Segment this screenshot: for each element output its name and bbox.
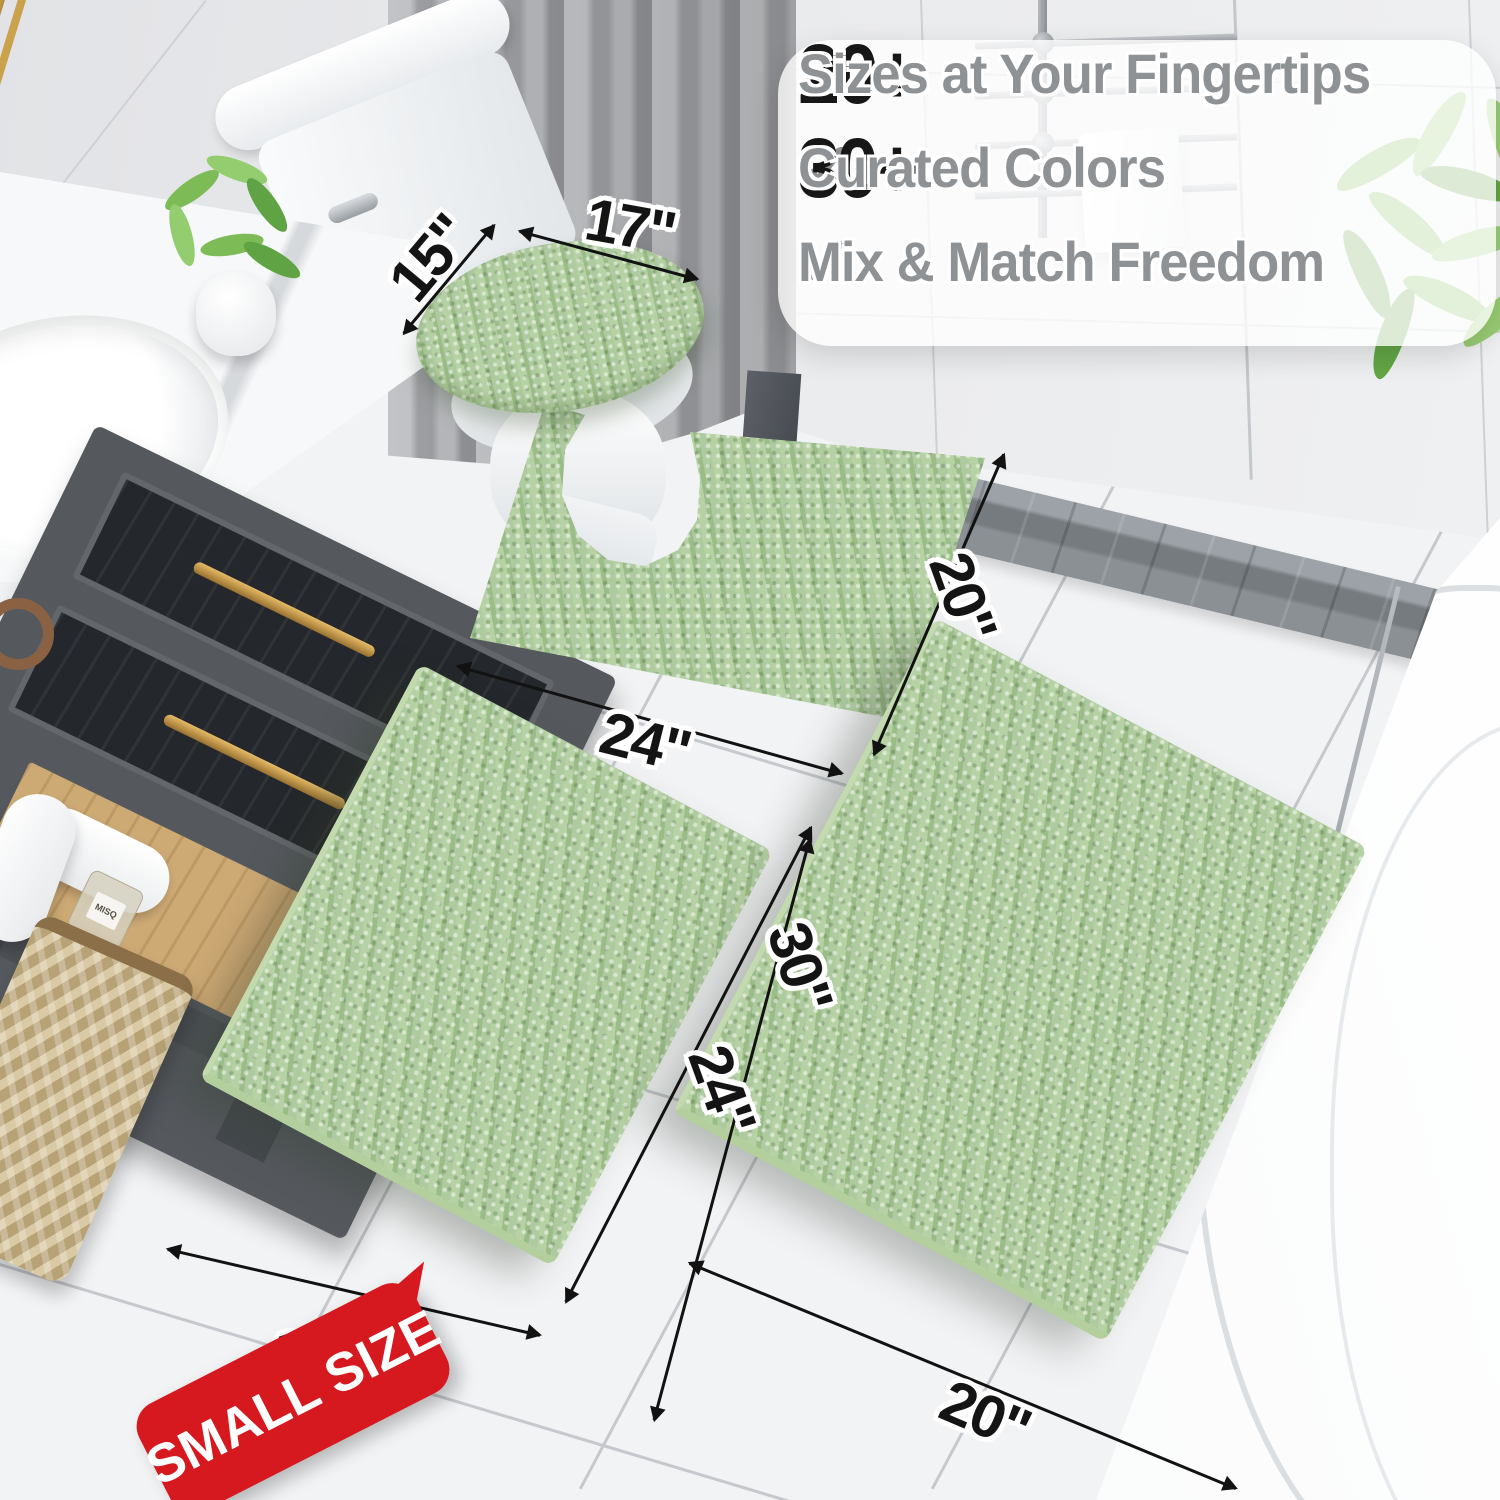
bottle-label: MISQ	[86, 891, 127, 930]
plant-pot	[196, 272, 276, 356]
feature-callout-box: ✓ 20+ Sizes at Your Fingertips ✓ 30+ Cur…	[778, 40, 1496, 346]
feature-text: Curated Colors	[798, 140, 1165, 196]
wall-grout-line	[39, 0, 207, 214]
small-size-badge: SMALL SIZE	[128, 1274, 459, 1500]
dimension-label-large-width: 20"	[930, 1366, 1039, 1464]
feature-text: Sizes at Your Fingertips	[798, 46, 1370, 102]
product-image-bathroom-rug-set: MISQ 15" 17" 24" 20" 24" 30" 16" 20" ✓ 2…	[0, 0, 1500, 1500]
feature-text: Mix & Match Freedom	[798, 234, 1324, 290]
